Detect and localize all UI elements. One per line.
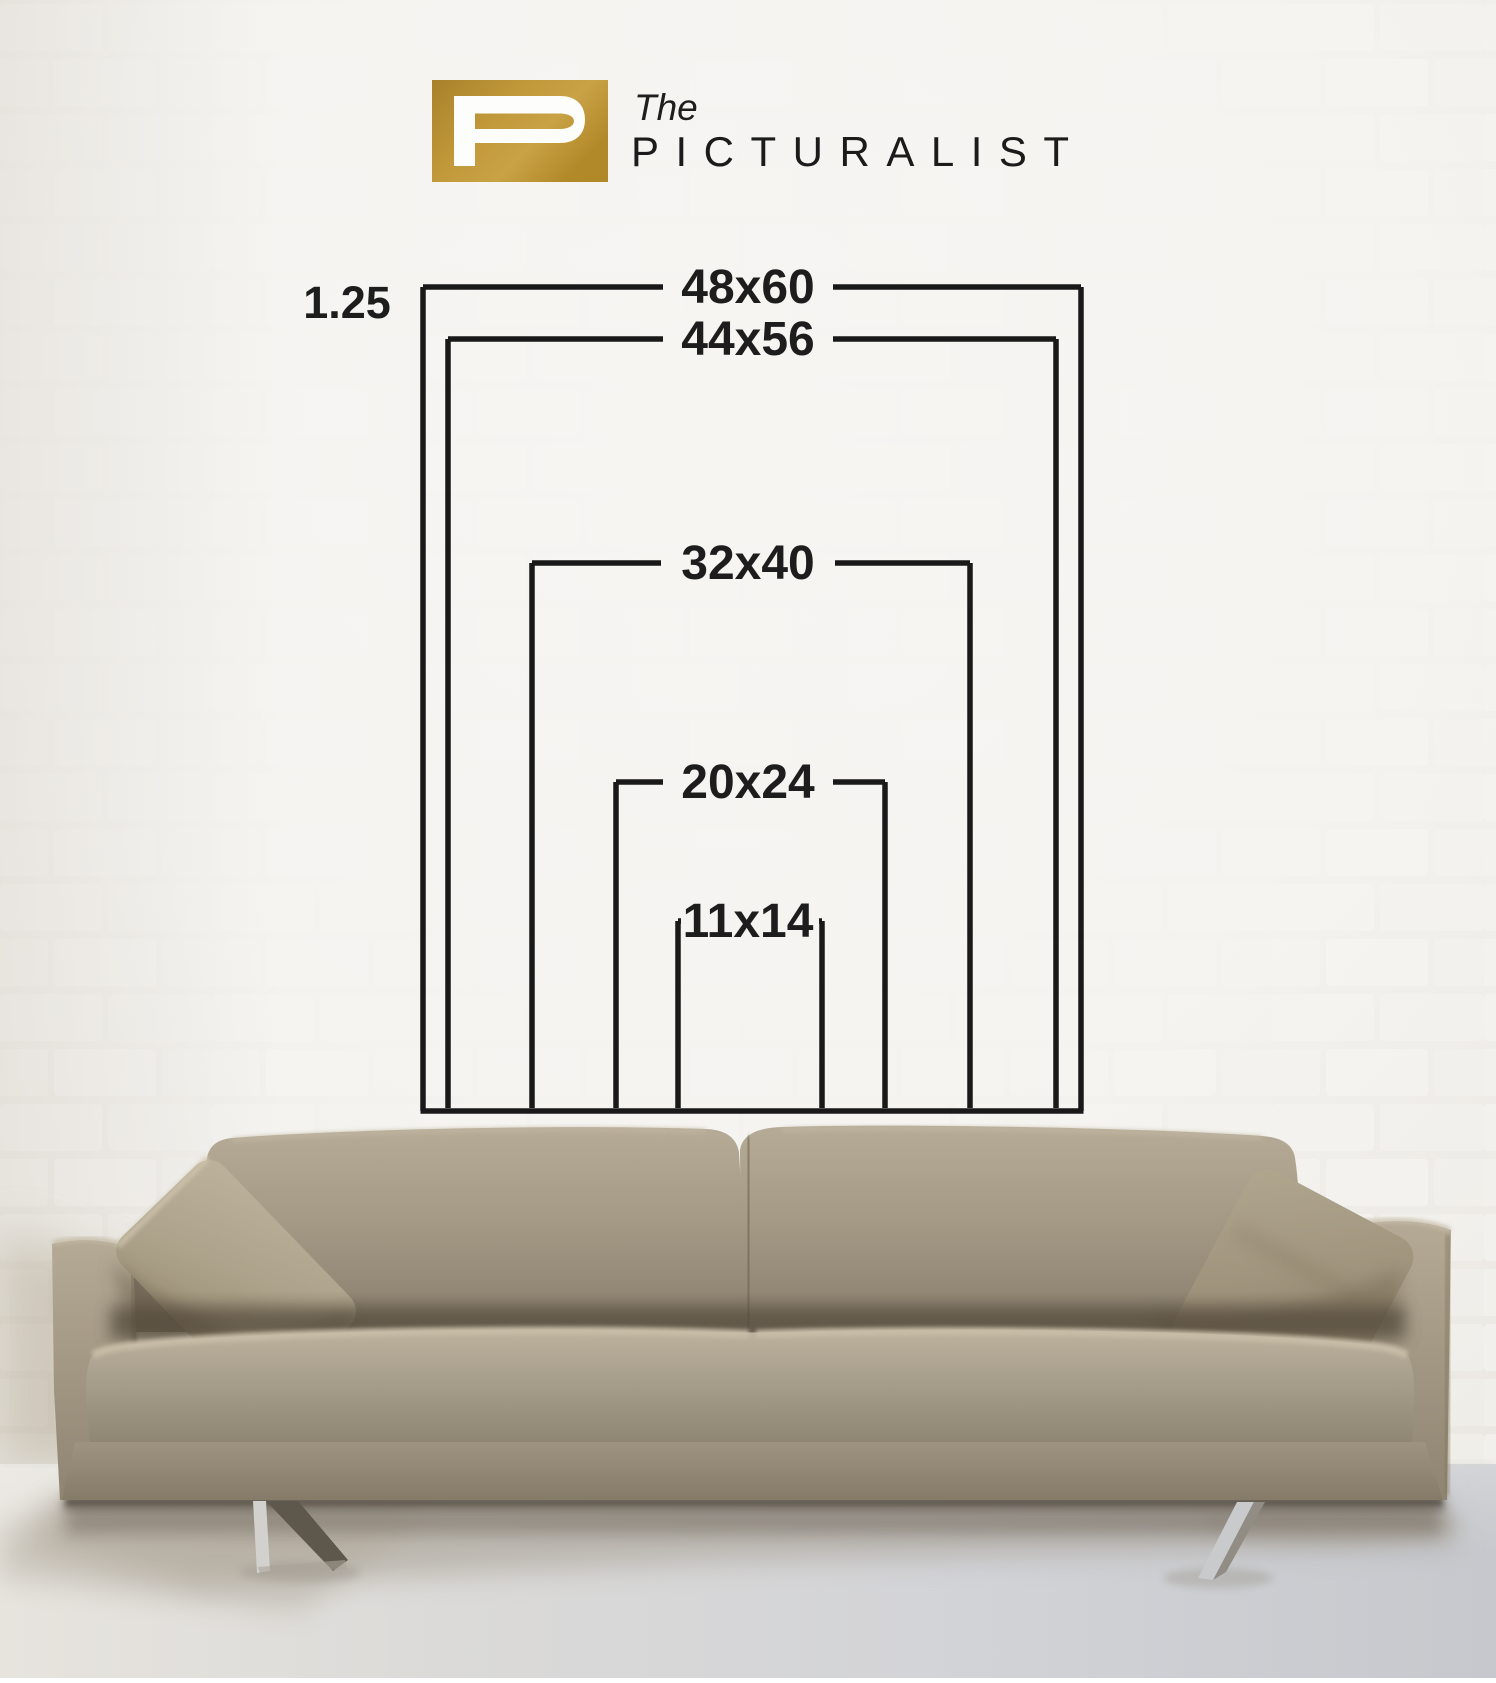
svg-text:32x40: 32x40: [681, 537, 814, 590]
svg-text:1.25: 1.25: [303, 277, 391, 328]
svg-text:44x56: 44x56: [681, 313, 814, 366]
svg-text:The: The: [634, 87, 698, 128]
svg-text:20x24: 20x24: [681, 756, 815, 809]
svg-text:48x60: 48x60: [681, 261, 814, 314]
svg-text:11x14: 11x14: [683, 895, 814, 948]
svg-text:PICTURALIST: PICTURALIST: [631, 128, 1086, 175]
